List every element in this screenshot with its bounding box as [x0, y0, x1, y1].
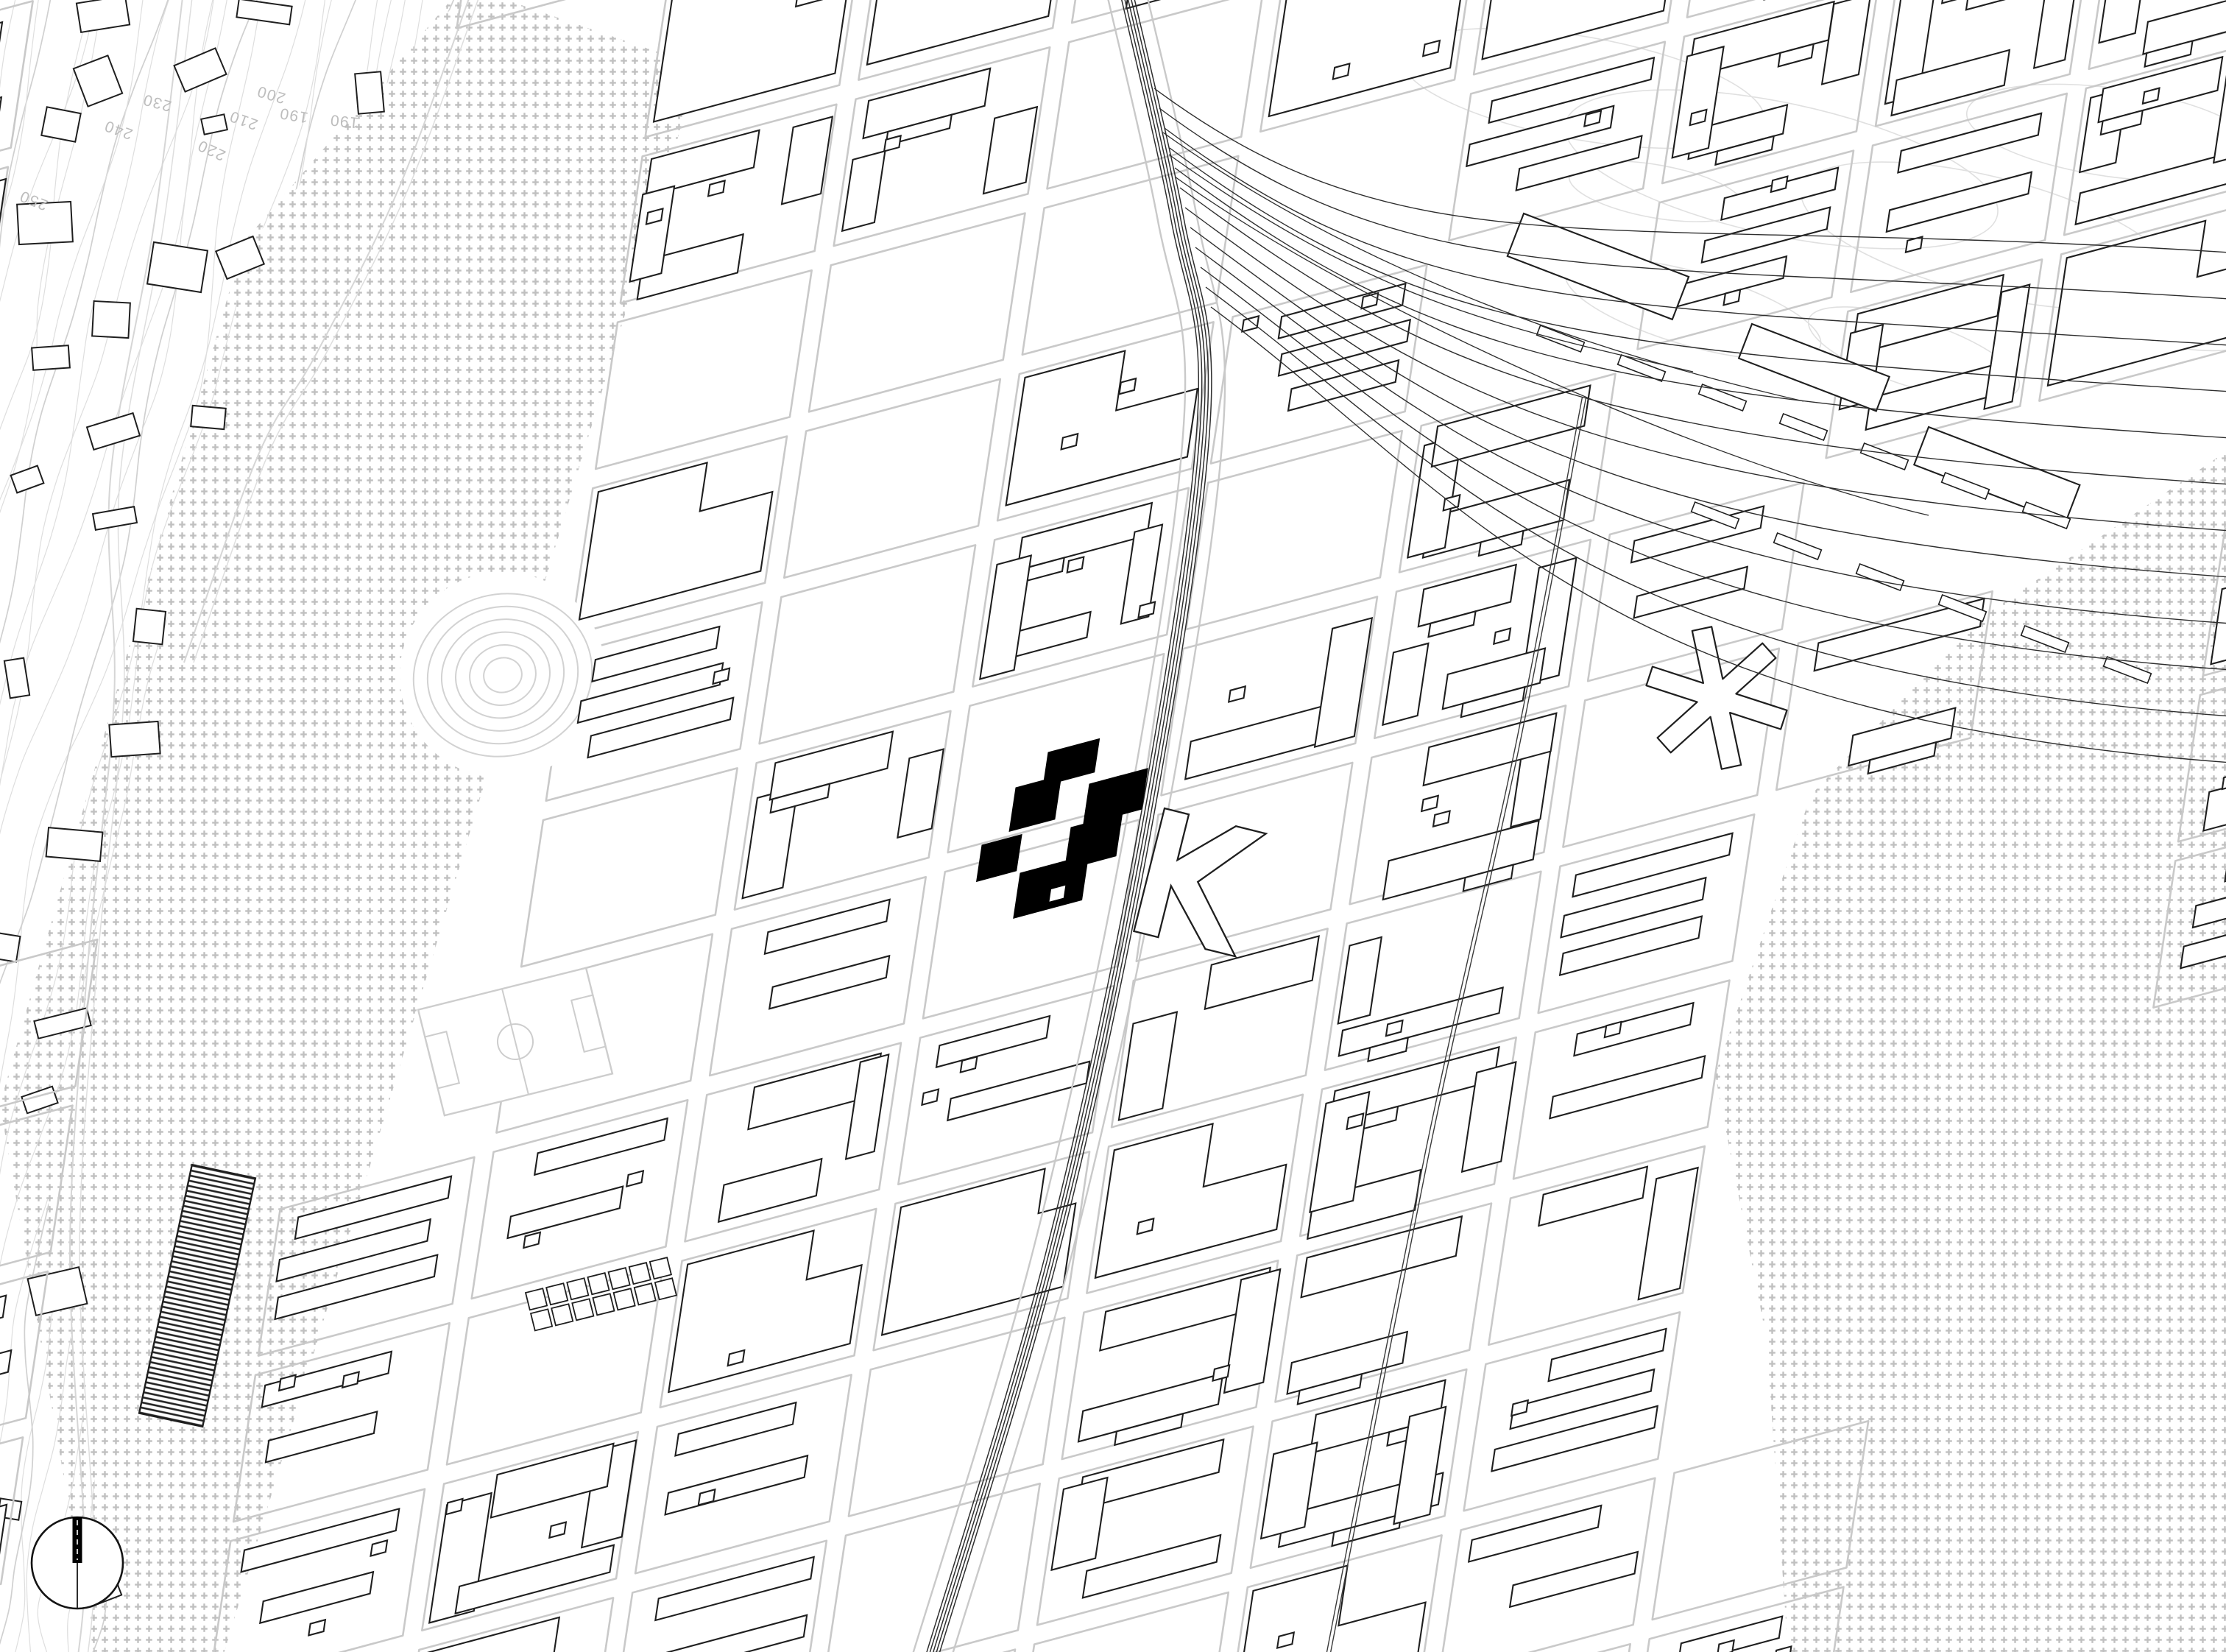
hillside-building [109, 721, 160, 757]
site-plan-stage: 200210220230240250190190 [0, 0, 2226, 1652]
garage-unit [655, 1278, 676, 1299]
garage-unit [614, 1288, 635, 1310]
hillside-building [0, 933, 20, 961]
north-compass [32, 1517, 123, 1609]
contour-elevation-label: 190 [328, 111, 359, 131]
garage-unit [629, 1263, 651, 1284]
site-plan-map: 200210220230240250190190 [0, 0, 2226, 1652]
hillside-building [147, 242, 208, 292]
hillside-building [41, 107, 80, 141]
garage-unit [572, 1299, 593, 1320]
garage-unit [593, 1293, 614, 1315]
roundabout-ground [400, 572, 606, 778]
garage-unit [526, 1288, 547, 1310]
garage-unit [546, 1283, 568, 1305]
hillside-building [92, 301, 130, 338]
hillside-building [133, 609, 166, 645]
hillside-building [355, 71, 384, 113]
garage-unit [567, 1278, 588, 1299]
hillside-building [32, 345, 70, 370]
garage-unit [609, 1268, 630, 1289]
hillside-building [191, 406, 226, 429]
garage-unit [650, 1257, 671, 1279]
garage-unit [587, 1273, 609, 1294]
garage-unit [551, 1304, 573, 1325]
garage-unit [531, 1309, 552, 1330]
garage-unit [635, 1283, 656, 1305]
hillside-building [46, 827, 103, 861]
